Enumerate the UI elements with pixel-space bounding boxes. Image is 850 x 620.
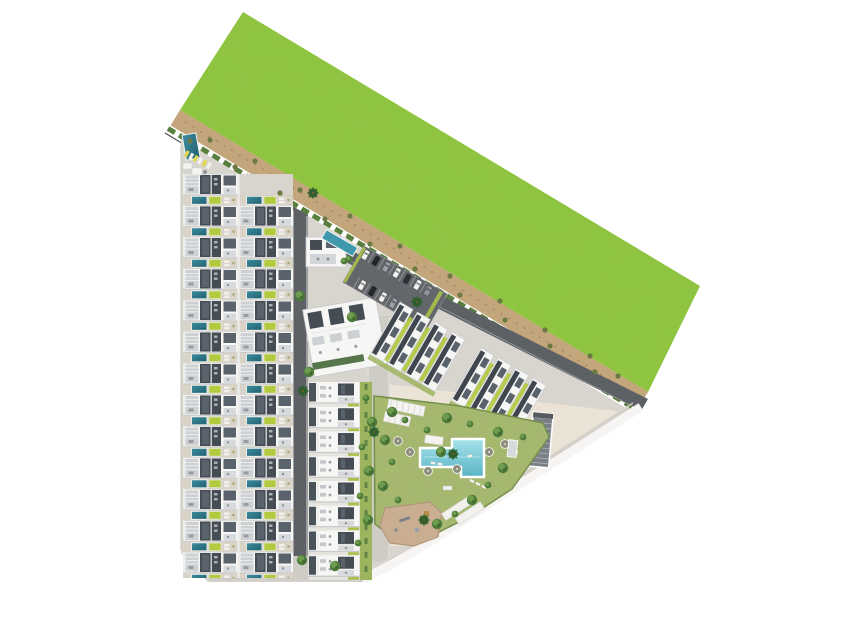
site-plan-rendering bbox=[0, 0, 850, 620]
mid-column-green-strip bbox=[360, 382, 372, 580]
rowhouse-block bbox=[183, 174, 293, 578]
masterplan-canvas bbox=[0, 0, 850, 620]
mid-apartment-column bbox=[308, 382, 372, 580]
mid-block-a bbox=[303, 297, 388, 377]
rowhouse-top-step bbox=[238, 174, 293, 195]
